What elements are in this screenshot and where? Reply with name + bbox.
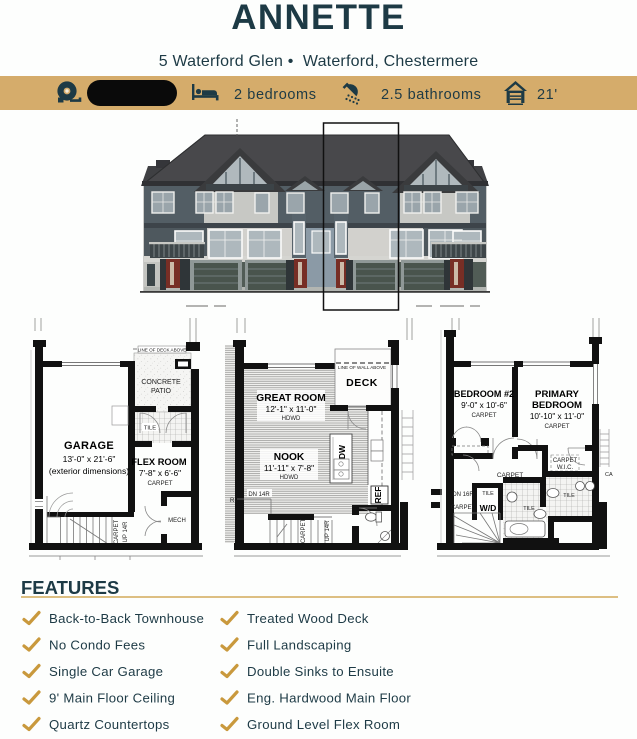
svg-text:Quartz Countertops: Quartz Countertops <box>49 717 170 732</box>
svg-text:12'-1" x 11'-0": 12'-1" x 11'-0" <box>266 404 317 414</box>
svg-text:Eng. Hardwood Main Floor: Eng. Hardwood Main Floor <box>247 691 411 706</box>
svg-text:No Condo Fees: No Condo Fees <box>49 638 145 653</box>
svg-text:BEDROOM #2: BEDROOM #2 <box>454 389 514 399</box>
svg-text:GARAGE: GARAGE <box>64 440 114 452</box>
svg-text:REF: REF <box>373 487 383 504</box>
svg-text:CARPET: CARPET <box>114 520 120 545</box>
svg-text:CARPET: CARPET <box>544 423 569 430</box>
svg-text:CARPET: CARPET <box>301 519 307 544</box>
svg-text:Full Landscaping: Full Landscaping <box>247 638 352 653</box>
svg-text:CARPET: CARPET <box>451 505 476 511</box>
svg-text:TILE: TILE <box>523 506 535 512</box>
svg-text:LINE OF WALL ABOVE: LINE OF WALL ABOVE <box>338 365 386 370</box>
svg-text:HDWD: HDWD <box>282 416 301 422</box>
svg-text:9'-0" x 10'-6": 9'-0" x 10'-6" <box>461 401 507 410</box>
svg-text:BEDROOM: BEDROOM <box>532 400 582 411</box>
svg-text:NOOK: NOOK <box>274 452 305 463</box>
svg-text:CA: CA <box>605 472 613 478</box>
svg-text:9' Main Floor Ceiling: 9' Main Floor Ceiling <box>49 691 175 706</box>
svg-text:R: R <box>230 498 235 504</box>
svg-text:TILE: TILE <box>144 426 156 432</box>
svg-text:W.I.C.: W.I.C. <box>557 465 574 471</box>
svg-text:7'-8" x 6'-6": 7'-8" x 6'-6" <box>139 468 181 478</box>
svg-text:TILE: TILE <box>563 493 575 499</box>
svg-text:PATIO: PATIO <box>151 388 172 395</box>
svg-text:DN 16R: DN 16R <box>452 492 474 498</box>
svg-text:UP 14R: UP 14R <box>123 521 129 543</box>
svg-text:CARPET: CARPET <box>147 480 172 487</box>
svg-text:(exterior dimensions): (exterior dimensions) <box>49 466 129 476</box>
svg-text:Single Car Garage: Single Car Garage <box>49 664 163 679</box>
svg-text:MECH: MECH <box>168 518 186 524</box>
svg-text:FLEX ROOM: FLEX ROOM <box>131 457 187 467</box>
svg-text:10'-10" x 11'-0": 10'-10" x 11'-0" <box>530 412 584 421</box>
svg-text:CARPET: CARPET <box>553 458 578 464</box>
svg-text:PRIMARY: PRIMARY <box>535 389 579 400</box>
svg-text:HDWD: HDWD <box>280 475 299 481</box>
svg-text:DW: DW <box>337 444 347 459</box>
svg-text:UP 14R: UP 14R <box>325 520 331 542</box>
svg-text:Double Sinks to Ensuite: Double Sinks to Ensuite <box>247 664 394 679</box>
svg-text:GREAT ROOM: GREAT ROOM <box>256 393 325 404</box>
svg-text:TILE: TILE <box>482 491 494 497</box>
svg-text:13'-0" x 21'-6": 13'-0" x 21'-6" <box>63 454 116 464</box>
svg-text:Ground Level Flex Room: Ground Level Flex Room <box>247 717 400 732</box>
svg-text:LINE OF DECK ABOVE: LINE OF DECK ABOVE <box>138 348 187 353</box>
svg-text:CARPET: CARPET <box>471 412 496 419</box>
svg-text:DECK: DECK <box>346 377 378 389</box>
svg-text:Back-to-Back Townhouse: Back-to-Back Townhouse <box>49 611 204 626</box>
svg-text:11'-11" x 7'-8": 11'-11" x 7'-8" <box>264 463 314 473</box>
svg-text:Treated Wood Deck: Treated Wood Deck <box>247 611 369 626</box>
svg-text:W/D: W/D <box>480 503 497 513</box>
svg-text:CONCRETE: CONCRETE <box>141 379 181 386</box>
svg-text:DN 14R: DN 14R <box>248 492 270 498</box>
